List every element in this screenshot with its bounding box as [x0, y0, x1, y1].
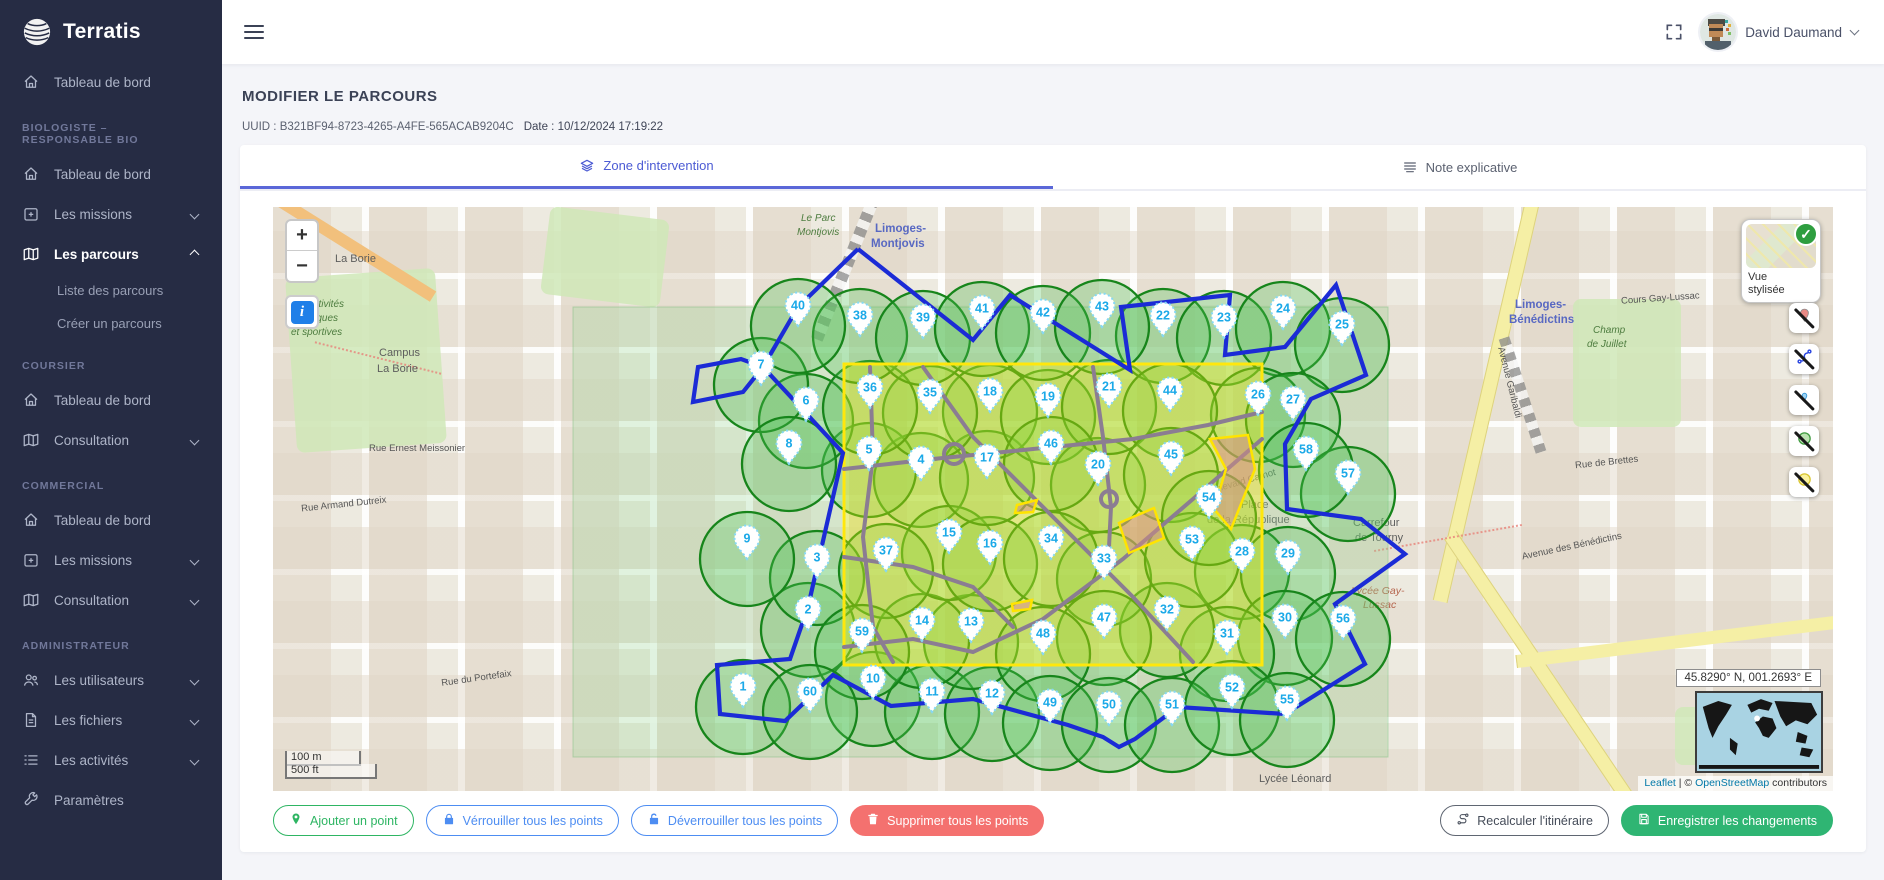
marker-number: 20 [1091, 458, 1105, 472]
note-icon [1402, 159, 1418, 175]
sidebar-item-tableau-de-bord[interactable]: Tableau de bord [0, 154, 222, 194]
marker-number: 35 [923, 386, 937, 400]
hide-point-icon [1796, 389, 1813, 411]
marker-number: 8 [786, 437, 793, 451]
marker-number: 58 [1299, 443, 1313, 457]
marker-number: 3 [814, 551, 821, 565]
info-button[interactable]: i [285, 295, 319, 329]
page-title: MODIFIER LE PARCOURS [242, 88, 1866, 105]
zoom-in-button[interactable]: + [287, 221, 317, 251]
save-icon [1637, 812, 1651, 829]
marker-number: 29 [1281, 547, 1295, 561]
date-value: Date : 10/12/2024 17:19:22 [524, 121, 663, 133]
osm-link[interactable]: OpenStreetMap [1695, 777, 1769, 789]
marker-number: 39 [916, 311, 930, 325]
marker-number: 25 [1335, 318, 1349, 332]
users-icon [22, 671, 40, 689]
marker-number: 48 [1036, 627, 1050, 641]
marker-number: 47 [1097, 611, 1111, 625]
file-icon [22, 711, 40, 729]
sidebar-item-les-parcours[interactable]: Les parcours [0, 234, 222, 274]
hamburger-menu-icon[interactable] [244, 21, 264, 43]
check-icon: ✓ [1794, 222, 1818, 246]
marker-number: 34 [1044, 532, 1058, 546]
map-icon [22, 431, 40, 449]
pin-icon [289, 812, 303, 829]
sidebar-item-les-utilisateurs[interactable]: Les utilisateurs [0, 660, 222, 700]
sidebar-subitem-liste-des-parcours[interactable]: Liste des parcours [0, 274, 222, 307]
button-label: Recalculer l'itinéraire [1477, 814, 1593, 828]
list-icon [22, 751, 40, 769]
marker-number: 26 [1251, 388, 1265, 402]
marker-number: 59 [855, 625, 869, 639]
style-view-label: Vue stylisée [1746, 268, 1804, 298]
marker-number: 38 [853, 309, 867, 323]
layers-icon [579, 158, 595, 174]
recalculer-l-itineraire-button[interactable]: Recalculer l'itinéraire [1440, 805, 1609, 836]
marker-number: 14 [915, 614, 929, 628]
marker-number: 49 [1043, 696, 1057, 710]
marker-number: 31 [1220, 627, 1234, 641]
marker-number: 15 [942, 526, 956, 540]
map[interactable]: La BorieCampusLa Boriedes activitésphysi… [273, 207, 1833, 791]
button-label: Déverrouiller tous les points [668, 814, 822, 828]
missions-icon [22, 205, 40, 223]
brand-name: Terratis [63, 20, 141, 44]
marker-number: 16 [983, 537, 997, 551]
hide-circle-icon [1796, 430, 1813, 452]
coordinates-readout: 45.8290° N, 001.2693° E [1676, 669, 1822, 687]
sidebar-item-label: Les missions [54, 207, 132, 222]
marker-number: 51 [1165, 698, 1179, 712]
sidebar-section-header: COURSIER [0, 340, 222, 380]
chevron-up-icon [190, 249, 200, 259]
chevron-down-icon [190, 209, 200, 219]
topbar: David Daumand [222, 0, 1884, 64]
main-content: MODIFIER LE PARCOURS UUID : B321BF94-872… [222, 64, 1884, 880]
marker-number: 22 [1156, 309, 1170, 323]
sidebar-item-label: Tableau de bord [54, 75, 151, 90]
marker-number: 53 [1185, 533, 1199, 547]
marker-number: 11 [925, 685, 938, 699]
tab-bar: Zone d'intervention Note explicative [240, 145, 1866, 191]
sidebar-item-label: Les fichiers [54, 713, 122, 728]
home-icon [22, 511, 40, 529]
zoom-out-button[interactable]: − [287, 251, 317, 281]
sidebar-item-les-activites[interactable]: Les activités [0, 740, 222, 780]
map-icon [22, 245, 40, 263]
globe-icon [22, 17, 52, 47]
chevron-down-icon [190, 435, 200, 445]
home-icon [22, 165, 40, 183]
marker-number: 42 [1036, 306, 1050, 320]
hide-route-icon [1796, 348, 1813, 370]
deverrouiller-tous-les-points-button[interactable]: Déverrouiller tous les points [631, 805, 838, 836]
leaflet-link[interactable]: Leaflet [1644, 777, 1676, 789]
scale-imperial: 500 ft [285, 764, 377, 779]
sidebar-item-consultation[interactable]: Consultation [0, 420, 222, 460]
chevron-down-icon [190, 595, 200, 605]
marker-number: 1 [740, 680, 747, 694]
route-icon [1456, 812, 1470, 829]
hide-zone-icon [1796, 471, 1813, 493]
lock-icon [442, 812, 456, 829]
marker-number: 6 [803, 394, 810, 408]
sidebar-item-consultation[interactable]: Consultation [0, 580, 222, 620]
marker-number: 60 [803, 685, 817, 699]
marker-number: 18 [983, 385, 997, 399]
ajouter-un-point-button[interactable]: Ajouter un point [273, 805, 414, 836]
point-actions: Ajouter un pointVérrouiller tous les poi… [273, 805, 1044, 836]
uuid-value: UUID : B321BF94-8723-4265-A4FE-565ACAB92… [242, 121, 514, 133]
tab-label: Zone d'intervention [603, 158, 713, 173]
sidebar-item-tableau-de-bord[interactable]: Tableau de bord [0, 500, 222, 540]
sidebar-item-label: Consultation [54, 433, 129, 448]
marker-number: 12 [985, 687, 999, 701]
parcours-card: Zone d'intervention Note explicative [240, 145, 1866, 852]
marker-number: 24 [1276, 302, 1290, 316]
marker-number: 7 [758, 358, 765, 372]
button-label: Vérrouiller tous les points [463, 814, 603, 828]
sidebar-item-les-missions[interactable]: Les missions [0, 540, 222, 580]
user-name: David Daumand [1745, 25, 1842, 40]
sidebar-section-header: COMMERCIAL [0, 460, 222, 500]
marker-number: 5 [866, 443, 873, 457]
sidebar: Terratis Tableau de bordBIOLOGISTE – RES… [0, 0, 222, 880]
scale-control: 100 m 500 ft [285, 751, 377, 779]
avatar [1700, 14, 1736, 50]
user-menu[interactable]: David Daumand [1700, 14, 1858, 50]
hide-marker-icon [1796, 307, 1813, 329]
layer-toggle-group [1789, 303, 1819, 497]
zoom-control: + − [285, 219, 319, 283]
chevron-down-icon [190, 555, 200, 565]
wrench-icon [22, 791, 40, 809]
home-icon [22, 73, 40, 91]
sidebar-item-les-missions[interactable]: Les missions [0, 194, 222, 234]
sidebar-item-tableau-de-bord[interactable]: Tableau de bord [0, 380, 222, 420]
marker-number: 40 [791, 299, 805, 313]
marker-number: 19 [1041, 390, 1055, 404]
brand-logo[interactable]: Terratis [0, 0, 222, 62]
tab-label: Note explicative [1426, 160, 1518, 175]
chevron-down-icon [190, 715, 200, 725]
enregistrer-les-changements-button[interactable]: Enregistrer les changements [1621, 805, 1833, 836]
marker-number: 41 [975, 302, 989, 316]
toggle-points-visibility[interactable] [1789, 385, 1819, 415]
marker-number: 9 [744, 532, 751, 546]
marker-number: 56 [1336, 612, 1350, 626]
toggle-route-visibility[interactable] [1789, 344, 1819, 374]
home-icon [22, 391, 40, 409]
marker-number: 13 [964, 615, 978, 629]
route-actions: Recalculer l'itinéraireEnregistrer les c… [1440, 805, 1833, 836]
sidebar-item-les-fichiers[interactable]: Les fichiers [0, 700, 222, 740]
parcours-meta: UUID : B321BF94-8723-4265-A4FE-565ACAB92… [242, 121, 1866, 133]
marker-number: 43 [1095, 300, 1109, 314]
marker-number: 17 [980, 451, 994, 465]
marker-number: 54 [1202, 491, 1216, 505]
sidebar-item-label: Les missions [54, 553, 132, 568]
info-icon: i [291, 301, 314, 324]
marker-number: 36 [863, 381, 877, 395]
marker-number: 28 [1235, 545, 1249, 559]
sidebar-nav: Tableau de bordBIOLOGISTE – RESPONSABLE … [0, 62, 222, 820]
sidebar-item-parametres[interactable]: Paramètres [0, 780, 222, 820]
toggle-zone-visibility[interactable] [1789, 467, 1819, 497]
marker-number: 4 [918, 453, 925, 467]
actions-bar: Ajouter un pointVérrouiller tous les poi… [273, 805, 1833, 836]
marker-number: 32 [1160, 603, 1174, 617]
fullscreen-icon[interactable] [1664, 22, 1684, 42]
missions-icon [22, 551, 40, 569]
marker-number: 23 [1217, 311, 1231, 325]
chevron-down-icon [190, 675, 200, 685]
marker-number: 2 [805, 603, 812, 617]
marker-number: 44 [1163, 384, 1177, 398]
style-view-toggle[interactable]: ✓ Vue stylisée [1741, 219, 1821, 303]
marker-number: 50 [1102, 698, 1116, 712]
marker-number: 27 [1286, 393, 1300, 407]
map-attribution: Leaflet | © OpenStreetMap contributors [1638, 776, 1833, 791]
toggle-circles-visibility[interactable] [1789, 426, 1819, 456]
sidebar-section-header: BIOLOGISTE – RESPONSABLE BIO [0, 102, 222, 154]
sidebar-item-label: Les activités [54, 753, 128, 768]
marker-number: 21 [1102, 380, 1116, 394]
map-overlay: 1234567891011121314151617181920212223242… [273, 207, 1833, 791]
tab-note-explicative[interactable]: Note explicative [1053, 145, 1866, 189]
toggle-markers-visibility[interactable] [1789, 303, 1819, 333]
sidebar-section-header: ADMINISTRATEUR [0, 620, 222, 660]
sidebar-item-label: Les utilisateurs [54, 673, 144, 688]
chevron-down-icon [190, 755, 200, 765]
marker-number: 57 [1341, 467, 1355, 481]
marker-number: 45 [1164, 448, 1178, 462]
minimap-overview[interactable] [1695, 691, 1823, 773]
sidebar-item-label: Les parcours [54, 247, 139, 262]
verrouiller-tous-les-points-button[interactable]: Vérrouiller tous les points [426, 805, 619, 836]
button-label: Supprimer tous les points [887, 814, 1028, 828]
marker-number: 52 [1225, 681, 1239, 695]
sidebar-item-label: Tableau de bord [54, 513, 151, 528]
marker-number: 10 [866, 672, 880, 686]
sidebar-subitem-creer-un-parcours[interactable]: Créer un parcours [0, 307, 222, 340]
trash-icon [866, 812, 880, 829]
supprimer-tous-les-points-button[interactable]: Supprimer tous les points [850, 805, 1044, 836]
sidebar-item-label: Paramètres [54, 793, 124, 808]
marker-number: 33 [1097, 552, 1111, 566]
unlock-icon [647, 812, 661, 829]
button-label: Enregistrer les changements [1658, 814, 1817, 828]
sidebar-item-label: Consultation [54, 593, 129, 608]
chevron-down-icon [1850, 26, 1860, 36]
marker-number: 46 [1044, 437, 1058, 451]
sidebar-item-tableau-de-bord[interactable]: Tableau de bord [0, 62, 222, 102]
map-icon [22, 591, 40, 609]
marker-number: 37 [879, 544, 893, 558]
button-label: Ajouter un point [310, 814, 398, 828]
marker-number: 55 [1280, 693, 1294, 707]
marker-number: 30 [1278, 611, 1292, 625]
sidebar-item-label: Tableau de bord [54, 393, 151, 408]
tab-zone-intervention[interactable]: Zone d'intervention [240, 145, 1053, 189]
sidebar-item-label: Tableau de bord [54, 167, 151, 182]
